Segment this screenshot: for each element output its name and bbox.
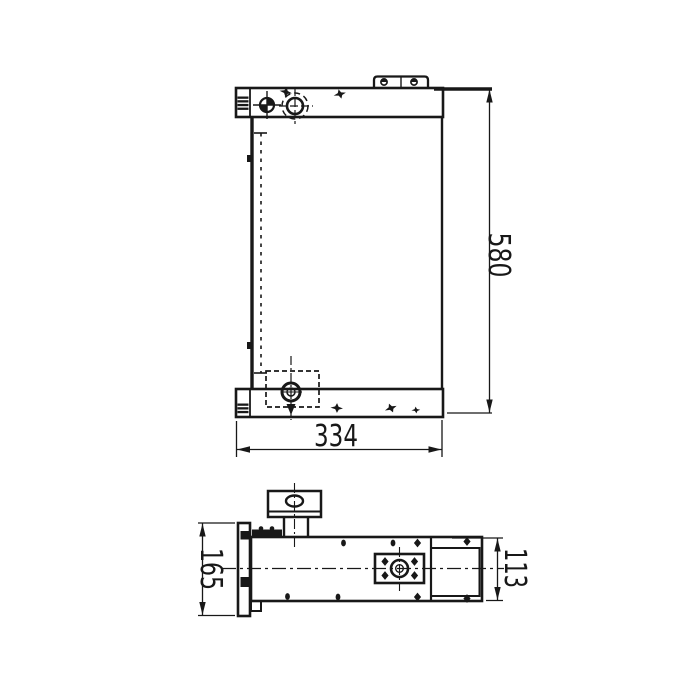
weld-mark <box>383 402 398 415</box>
front-view <box>236 77 443 421</box>
technical-drawing-svg: 334 580 <box>0 0 700 700</box>
weld-mark <box>330 402 344 413</box>
front-port-target-small <box>253 91 281 119</box>
side-view <box>222 483 504 616</box>
dimension-flange-height: 165 <box>193 523 235 616</box>
weld-mark <box>411 407 420 414</box>
dim-165-label: 165 <box>193 548 228 590</box>
front-view-dimensions: 334 580 <box>237 89 517 457</box>
side-body <box>251 537 482 611</box>
dimension-height: 580 <box>434 89 516 413</box>
front-bottom-tank <box>236 389 443 417</box>
dim-113-label: 113 <box>497 548 532 588</box>
dimension-width: 334 <box>237 419 443 457</box>
front-port-target-large <box>279 88 313 124</box>
front-top-bracket <box>374 77 428 89</box>
dim-334-label: 334 <box>314 419 358 454</box>
side-edge-studs <box>285 537 471 603</box>
side-flange-plate <box>238 523 250 616</box>
side-clamp-block <box>252 526 282 536</box>
front-bottom-tab-hatch <box>238 404 249 414</box>
front-top-tab-hatch <box>238 97 249 110</box>
dim-580-label: 580 <box>481 233 516 278</box>
weld-mark <box>333 88 347 100</box>
front-core-body <box>247 117 442 389</box>
drawing-sheet: 334 580 <box>0 0 700 700</box>
